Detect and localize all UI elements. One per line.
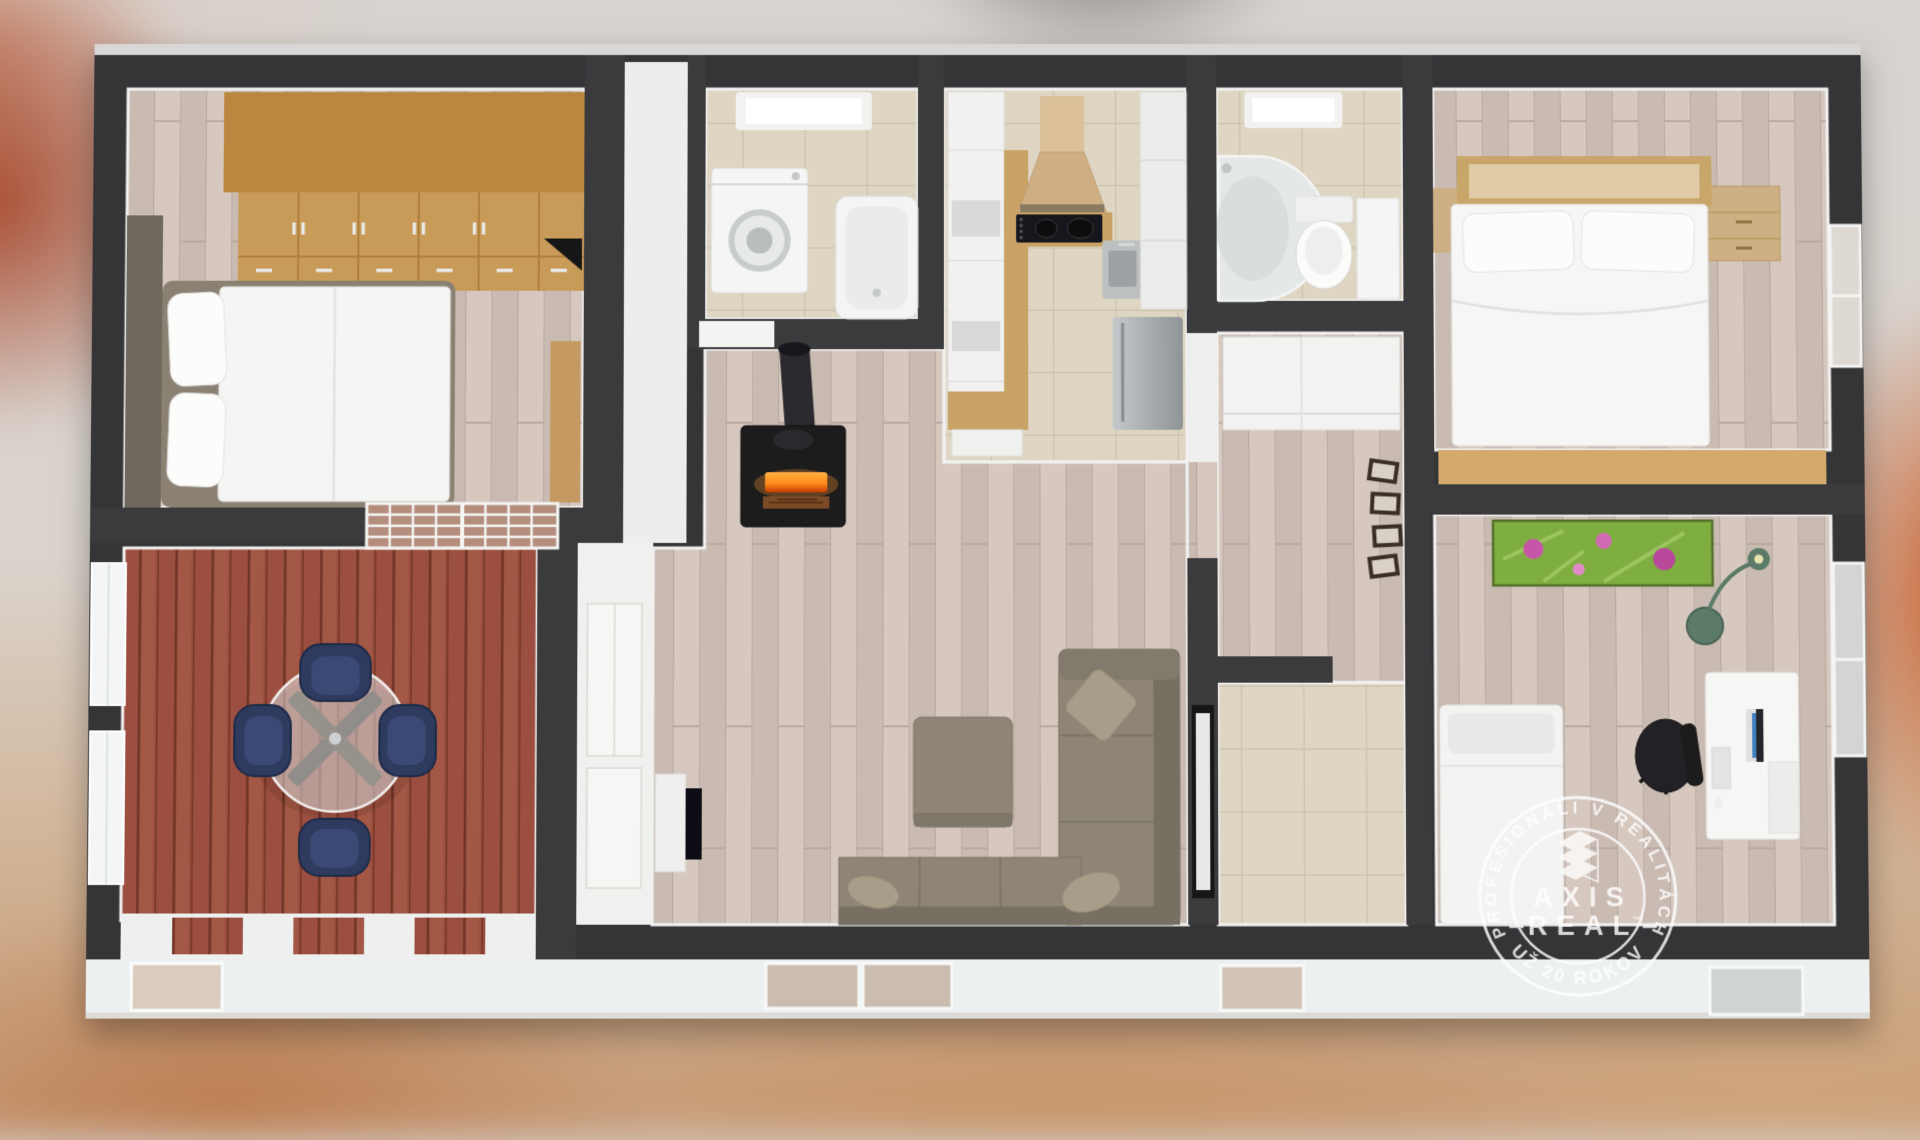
shower-tray bbox=[1216, 176, 1289, 280]
wood-counter-vertical bbox=[1004, 150, 1028, 430]
tv-cabinet bbox=[655, 774, 686, 872]
washer-drum bbox=[746, 227, 772, 253]
lower-cabinet bbox=[952, 430, 1022, 456]
wall-terrace-right bbox=[536, 543, 578, 959]
headboard-panel bbox=[124, 215, 163, 507]
chair-seat bbox=[311, 656, 360, 695]
shower-head bbox=[1221, 163, 1231, 173]
partition-storage-top bbox=[1188, 656, 1333, 682]
fire-window bbox=[765, 472, 827, 492]
bedroom2-bench bbox=[1438, 450, 1826, 484]
facade-window bbox=[131, 963, 222, 1010]
watermark-trademark: ™ bbox=[1633, 915, 1642, 925]
flower-painting bbox=[1493, 521, 1713, 586]
facade-base-line bbox=[86, 1013, 1870, 1019]
ottoman bbox=[914, 717, 1013, 827]
sink-basin bbox=[1108, 251, 1136, 287]
chair-seat bbox=[244, 716, 283, 765]
facade-window bbox=[1221, 966, 1304, 1011]
toilet-seat bbox=[1305, 226, 1343, 274]
monitor-screen bbox=[1752, 713, 1756, 758]
duvet-fold bbox=[334, 287, 335, 502]
stove-flue bbox=[773, 430, 813, 450]
bathroom-door bbox=[1357, 198, 1400, 298]
chimney-cap bbox=[778, 342, 810, 356]
floor-plan-render: PROFESIONÁLI V REALITÁCH UŽ 20 ROKOV AXI… bbox=[0, 0, 1920, 1092]
tv bbox=[685, 788, 701, 859]
hall-cabinet bbox=[1223, 337, 1400, 430]
headboard-panel bbox=[1469, 164, 1700, 198]
floor-plan-stage: PROFESIONÁLI V REALITÁCH UŽ 20 ROKOV AXI… bbox=[0, 0, 1920, 1092]
burner bbox=[1067, 218, 1093, 238]
monitor bbox=[1756, 709, 1764, 762]
bedroom1-bench bbox=[550, 341, 581, 502]
sofa-backrest bbox=[1153, 649, 1180, 924]
sofa-armrest bbox=[1059, 649, 1180, 679]
chair-seat bbox=[310, 829, 359, 868]
pillow bbox=[1462, 210, 1575, 272]
burner bbox=[1035, 219, 1057, 237]
upper-cabinets bbox=[1140, 92, 1187, 309]
storage-floor bbox=[1218, 683, 1407, 925]
building bbox=[86, 44, 1870, 1019]
chair-seat bbox=[387, 716, 426, 765]
hood-slot bbox=[1020, 204, 1104, 212]
daybed-pillow bbox=[1448, 713, 1555, 754]
skylight-glass bbox=[746, 98, 862, 124]
keyboard bbox=[1712, 748, 1730, 789]
living-west-doors bbox=[586, 604, 641, 888]
laundry-door bbox=[699, 321, 774, 347]
bedroom2-window bbox=[1830, 225, 1861, 366]
sofa-backrest bbox=[839, 906, 1180, 924]
wall-kitchen-right bbox=[1186, 55, 1217, 333]
skylight-glass bbox=[1252, 98, 1334, 122]
office-chair bbox=[1635, 719, 1704, 794]
bathtub-drain bbox=[873, 289, 881, 297]
terrace-railing bbox=[120, 914, 535, 960]
drawer-handle bbox=[1736, 220, 1752, 223]
cabinet-panel bbox=[952, 200, 1000, 236]
wall-laundry-left bbox=[687, 55, 706, 349]
table-hub bbox=[329, 732, 341, 744]
wall-kitchen-right-lower bbox=[1187, 333, 1217, 462]
wall-bath2-bottom bbox=[1217, 301, 1434, 331]
toilet-tank bbox=[1295, 196, 1353, 222]
watermark-brand-line2: REAL bbox=[1528, 910, 1639, 941]
hall-doorway-floor bbox=[1187, 462, 1217, 558]
facade-window bbox=[1710, 968, 1803, 1015]
wall-bedroom1-right bbox=[583, 55, 625, 548]
cabinet-panel bbox=[952, 321, 1000, 351]
wardrobe-top bbox=[223, 92, 584, 192]
wall-cap-white bbox=[623, 62, 688, 543]
roof-edge bbox=[94, 44, 1860, 56]
facade-window bbox=[766, 963, 859, 1008]
wardrobe-front bbox=[238, 192, 584, 290]
wood-counter-bottom bbox=[948, 391, 1028, 429]
pillow bbox=[167, 291, 227, 386]
washer-knob bbox=[792, 172, 800, 180]
ottoman-base bbox=[914, 813, 1013, 827]
pillow bbox=[166, 393, 226, 488]
watermark-brand-line1: AXIS bbox=[1533, 882, 1633, 913]
desk-drawers bbox=[1769, 762, 1800, 833]
wall-bedroom2-left bbox=[1402, 55, 1434, 515]
wall-laundry-kitchen bbox=[918, 55, 944, 349]
wall-bedroom2-office bbox=[1404, 484, 1865, 514]
wall-storage-office bbox=[1404, 515, 1432, 925]
french-doors bbox=[367, 504, 558, 548]
facade-window bbox=[863, 963, 952, 1008]
drawer-handle bbox=[1736, 247, 1752, 250]
office-window bbox=[1833, 563, 1865, 756]
partition-picture bbox=[1196, 713, 1211, 890]
chimney-pipe bbox=[779, 349, 815, 432]
hood-chimney bbox=[1040, 96, 1084, 152]
pillow bbox=[1581, 210, 1695, 272]
